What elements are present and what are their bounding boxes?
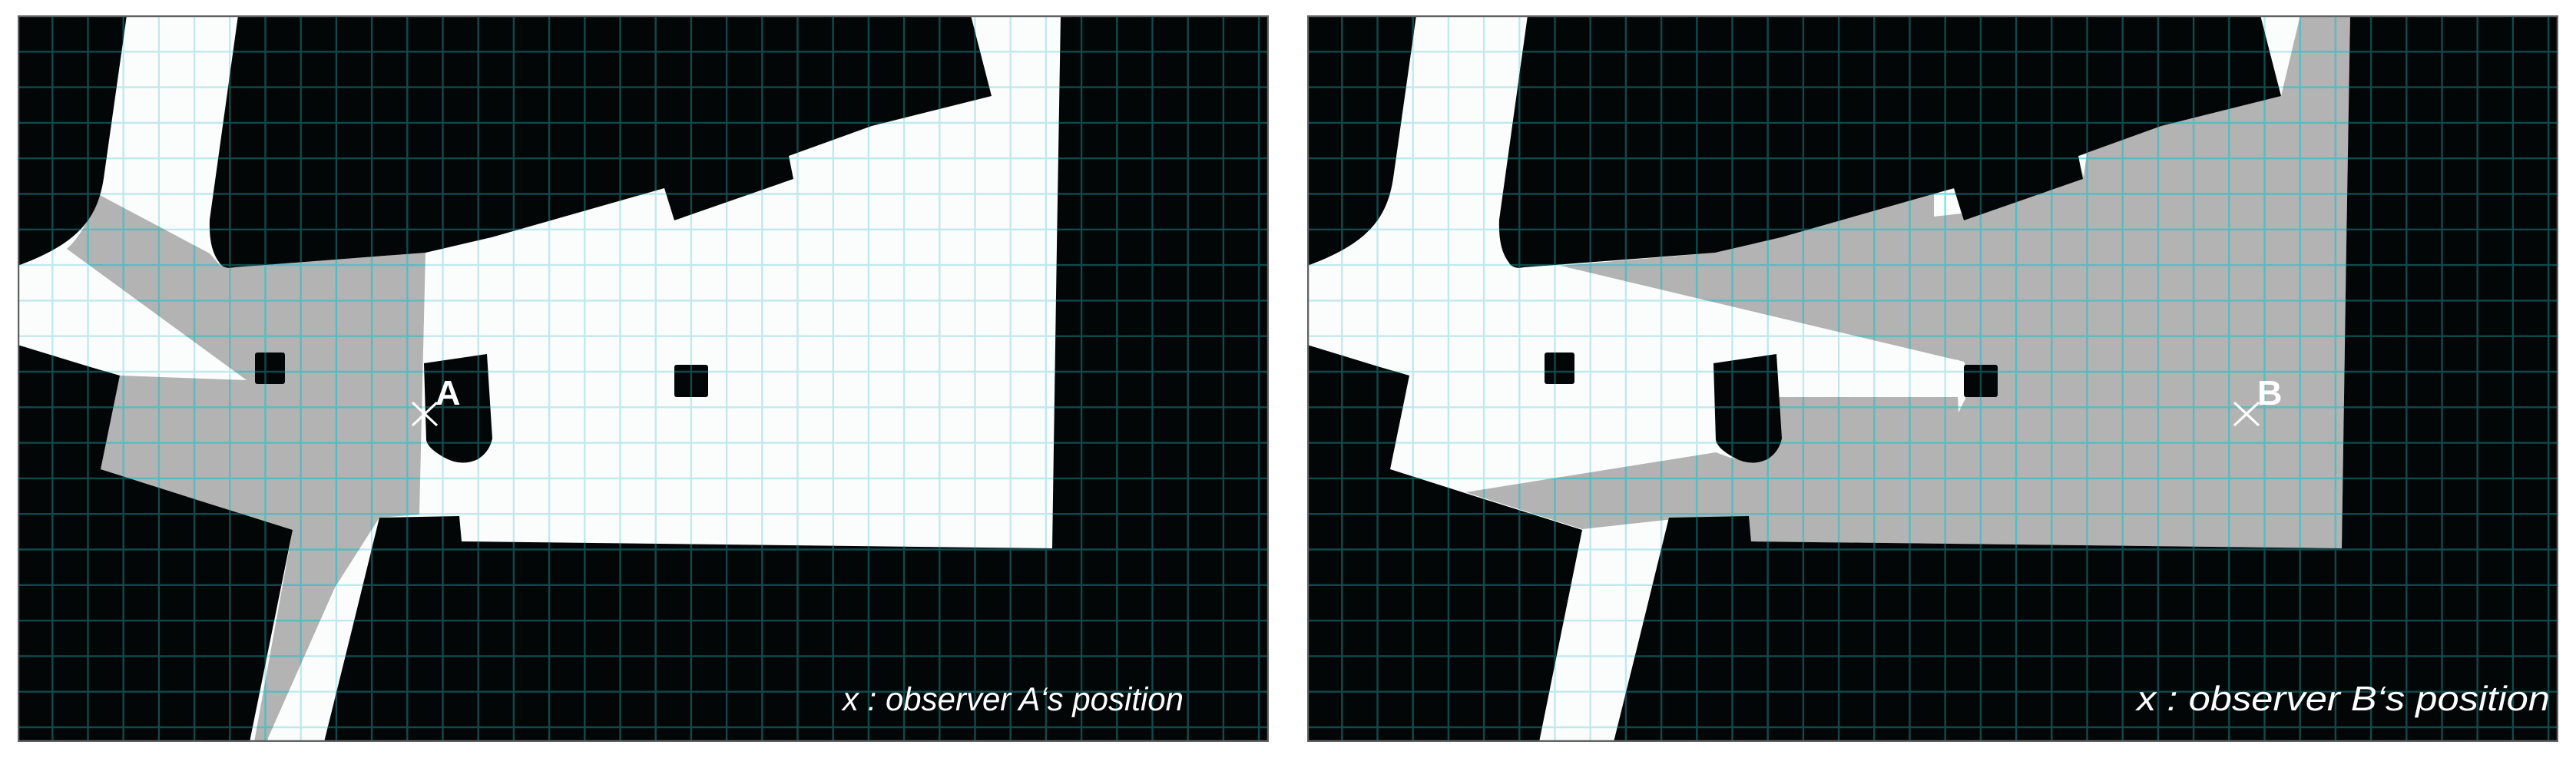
svg-text:x : observer A‘s position: x : observer A‘s position (841, 681, 1184, 718)
svg-text:B: B (2257, 373, 2283, 412)
svg-text:A: A (435, 373, 461, 412)
svg-text:x : observer B‘s position: x : observer B‘s position (2135, 679, 2550, 718)
